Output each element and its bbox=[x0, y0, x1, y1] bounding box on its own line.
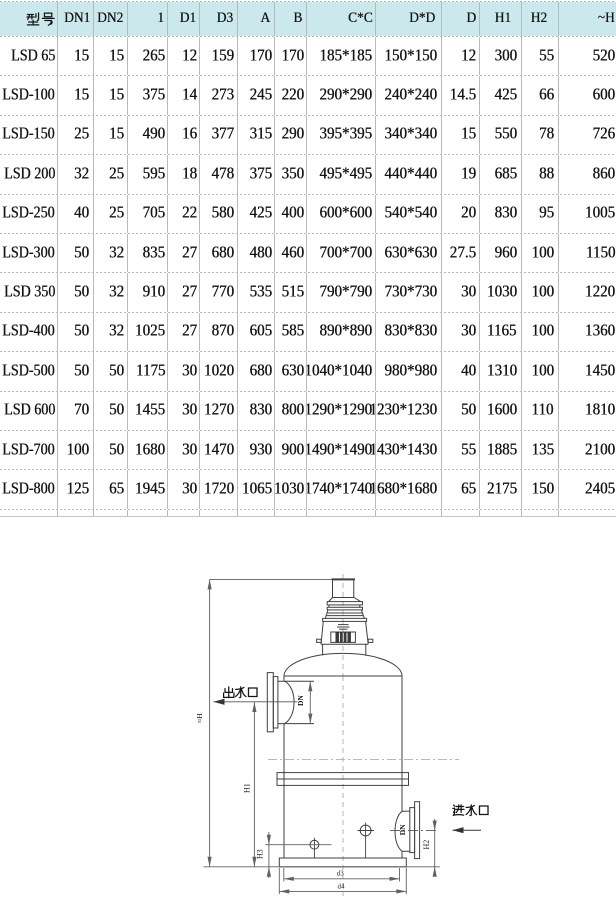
svg-text:≈H: ≈H bbox=[195, 713, 204, 723]
svg-text:H3: H3 bbox=[256, 849, 265, 859]
svg-text:DN: DN bbox=[296, 695, 305, 706]
svg-text:H1: H1 bbox=[243, 783, 252, 793]
svg-text:H2: H2 bbox=[422, 840, 431, 850]
svg-text:DN: DN bbox=[398, 824, 407, 835]
svg-text:d3: d3 bbox=[337, 869, 345, 877]
svg-text:d4: d4 bbox=[338, 882, 346, 890]
